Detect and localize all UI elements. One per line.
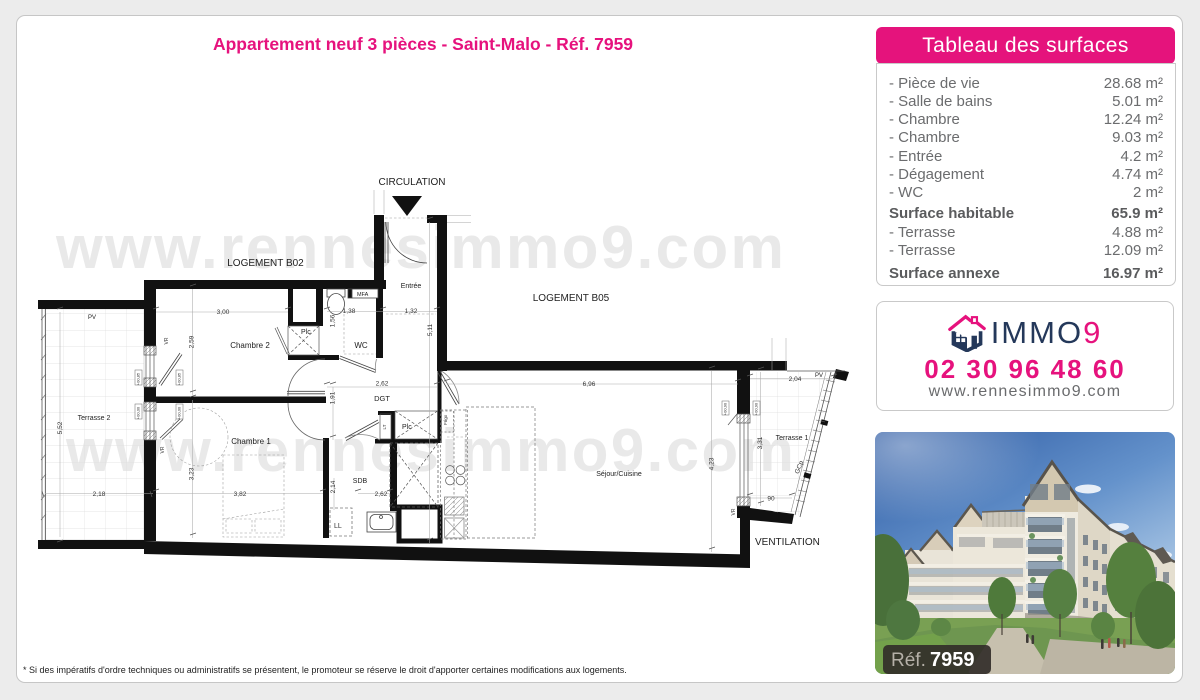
svg-text:Réf.: Réf.: [891, 650, 926, 671]
svg-text:PV: PV: [815, 373, 823, 379]
svg-text:Séjour/Cuisine: Séjour/Cuisine: [596, 471, 642, 478]
svg-text:2,59: 2,59: [189, 335, 196, 348]
svg-text:LOGEMENT B02: LOGEMENT B02: [227, 258, 304, 269]
svg-text:90: 90: [767, 496, 775, 503]
svg-text:2,62: 2,62: [375, 491, 388, 498]
svg-text:2,14: 2,14: [330, 480, 337, 493]
svg-text:Terrasse 1: Terrasse 1: [776, 435, 809, 442]
svg-text:Frigo: Frigo: [443, 414, 448, 425]
svg-text:4,23: 4,23: [709, 457, 716, 470]
svg-text:VR: VR: [731, 508, 737, 515]
svg-text:LL: LL: [334, 523, 342, 530]
svg-text:PV: PV: [88, 315, 96, 321]
svg-text:5,52: 5,52: [57, 421, 64, 434]
svg-text:SDB: SDB: [353, 478, 368, 485]
svg-text:3,23: 3,23: [189, 467, 196, 480]
svg-text:5,11: 5,11: [427, 324, 434, 337]
svg-text:Entrée: Entrée: [401, 283, 422, 290]
svg-text:2,18: 2,18: [93, 491, 106, 498]
svg-text:+00,00: +00,00: [177, 406, 182, 419]
svg-text:+00,90: +00,90: [723, 402, 728, 415]
svg-text:www.rennesimmo9.com: www.rennesimmo9.com: [55, 214, 786, 281]
svg-text:Chambre 1: Chambre 1: [231, 437, 271, 446]
svg-text:3,00: 3,00: [217, 309, 230, 316]
svg-text:Plc: Plc: [301, 329, 311, 336]
svg-text:3,82: 3,82: [234, 491, 247, 498]
svg-text:+00,90: +00,90: [754, 402, 759, 415]
svg-text:Terrasse 2: Terrasse 2: [78, 415, 111, 422]
svg-text:VR: VR: [164, 337, 170, 344]
svg-text:7959: 7959: [930, 649, 975, 671]
svg-text:LT: LT: [382, 424, 387, 429]
svg-text:Plc: Plc: [402, 424, 412, 431]
svg-text:MFA: MFA: [357, 292, 369, 298]
svg-text:1,56: 1,56: [330, 314, 337, 327]
svg-text:Chambre 2: Chambre 2: [230, 341, 270, 350]
svg-text:1,38: 1,38: [343, 308, 356, 315]
svg-text:LOGEMENT B05: LOGEMENT B05: [533, 293, 610, 304]
svg-text:2,04: 2,04: [789, 376, 802, 383]
svg-text:1,91: 1,91: [330, 391, 337, 404]
svg-text:1,32: 1,32: [405, 308, 418, 315]
svg-text:+00,00: +00,00: [136, 406, 141, 419]
svg-text:VR: VR: [160, 446, 166, 453]
svg-text:+00,85: +00,85: [136, 372, 141, 385]
svg-text:DGT: DGT: [374, 394, 390, 403]
svg-text:VENTILATION: VENTILATION: [755, 537, 820, 548]
svg-text:6,96: 6,96: [583, 381, 596, 388]
svg-text:+00,85: +00,85: [177, 372, 182, 385]
svg-text:3,31: 3,31: [757, 436, 764, 449]
svg-text:CIRCULATION: CIRCULATION: [378, 177, 445, 188]
svg-text:WC: WC: [354, 341, 368, 350]
svg-text:2,62: 2,62: [376, 381, 389, 388]
